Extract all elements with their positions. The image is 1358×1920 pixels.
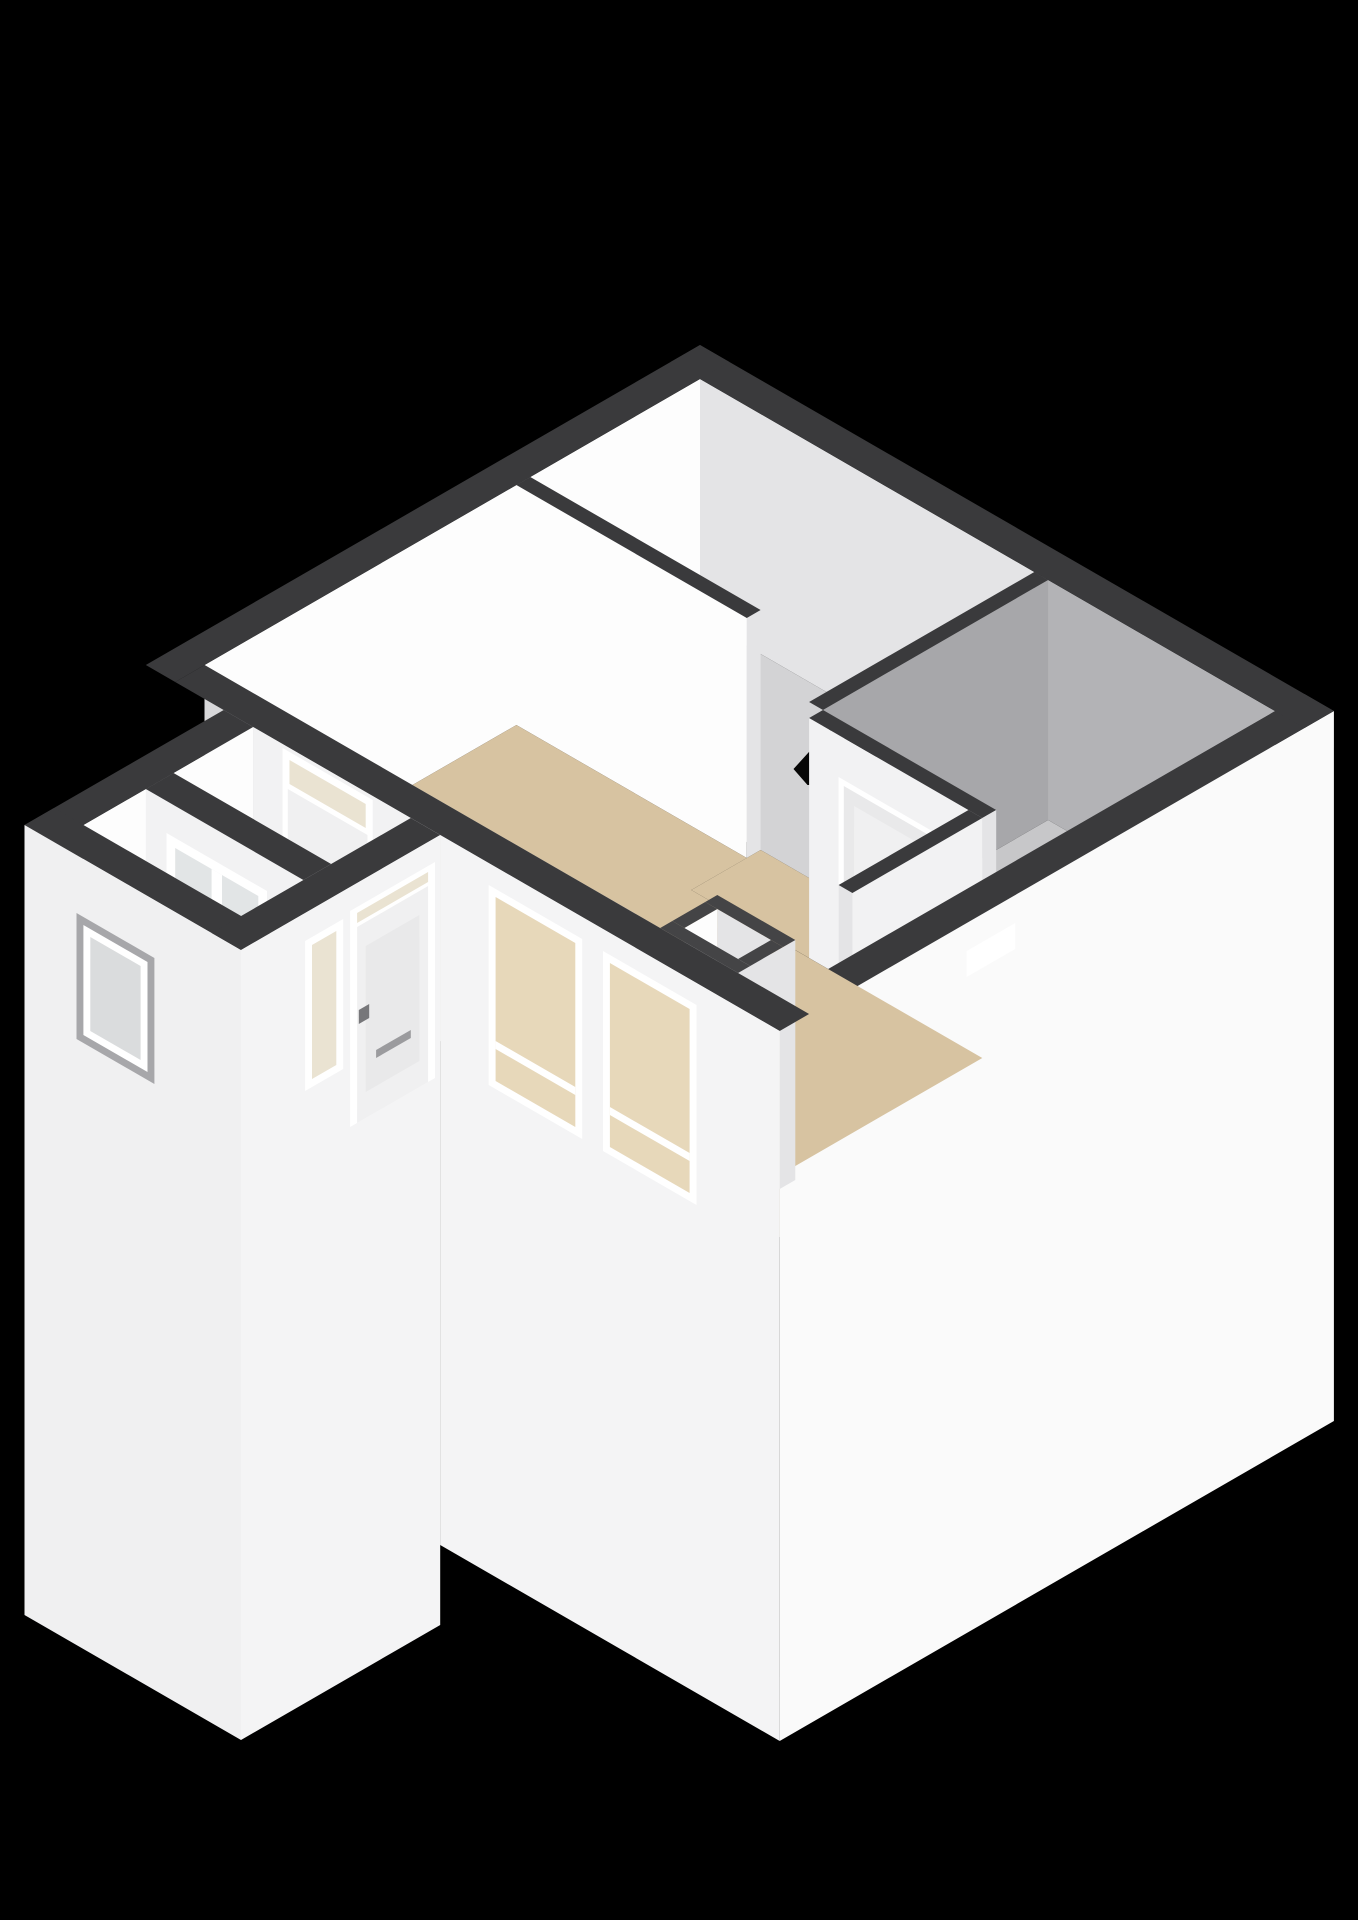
floorplan-3d-render xyxy=(0,0,1358,1920)
porch-window-glass xyxy=(312,931,336,1079)
floorplan-viewport xyxy=(0,0,1358,1920)
front-door-panel xyxy=(366,915,420,1092)
closet-wall-endcap xyxy=(747,610,761,858)
